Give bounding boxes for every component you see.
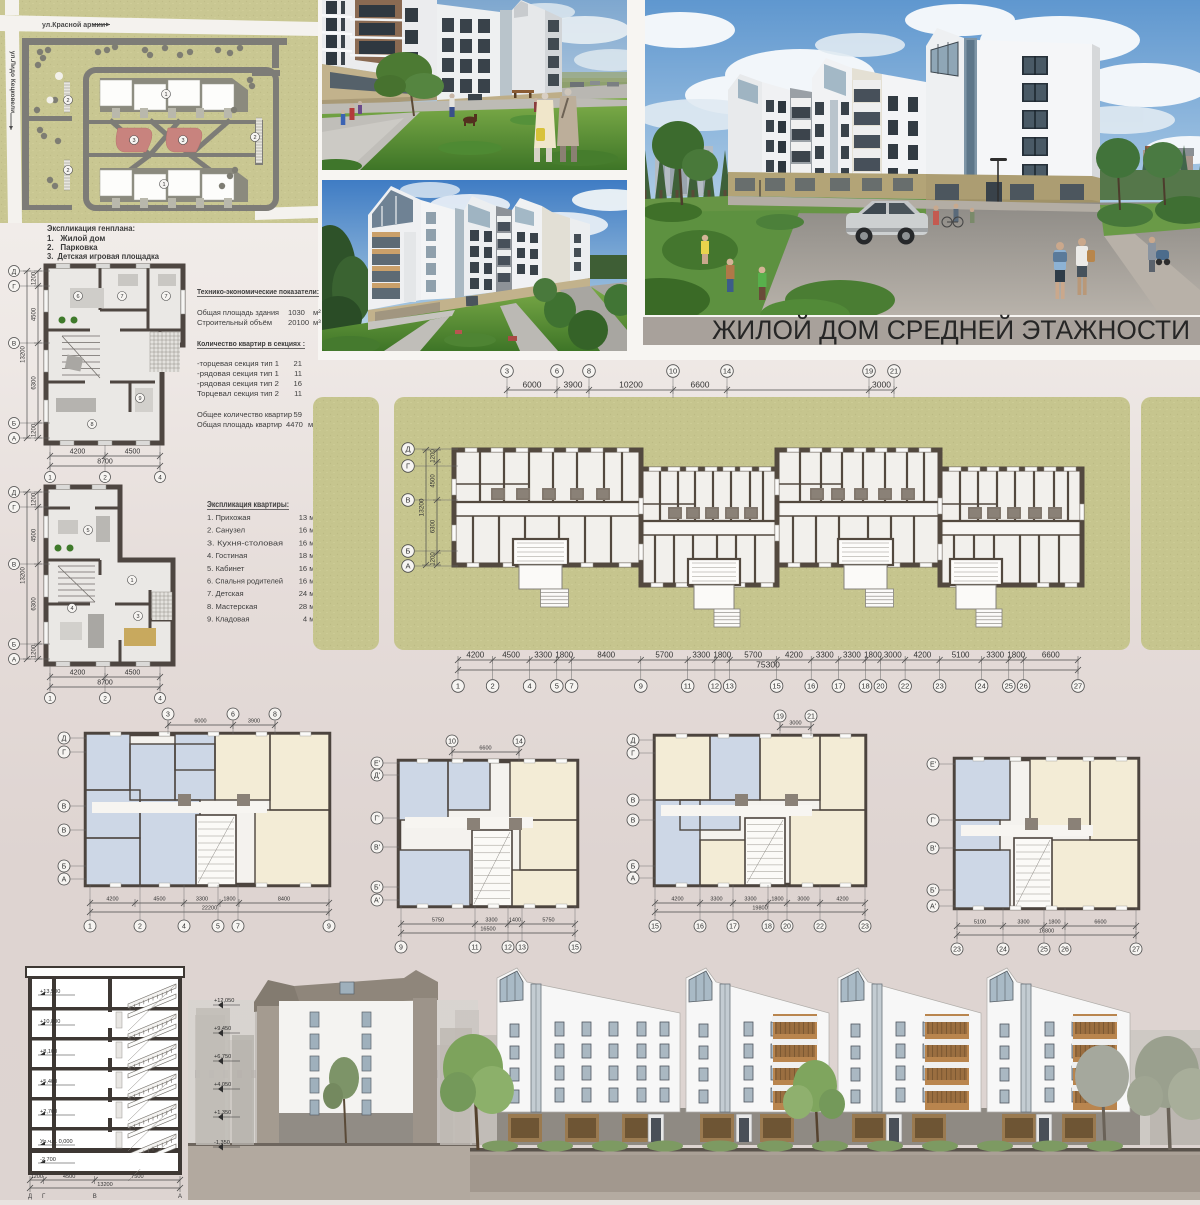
svg-text:Б: Б: [406, 547, 411, 556]
svg-text:Г: Г: [12, 504, 16, 511]
svg-text:4500: 4500: [153, 897, 165, 903]
svg-text:21: 21: [807, 714, 815, 721]
svg-text:Д: Д: [12, 489, 17, 496]
svg-text:11: 11: [471, 945, 478, 952]
svg-text:10: 10: [448, 739, 456, 746]
svg-text:5. Кабинет: 5. Кабинет: [207, 564, 245, 573]
svg-text:В: В: [631, 798, 636, 805]
svg-text:3. Кухня-столовая: 3. Кухня-столовая: [207, 538, 283, 547]
svg-text:ул.Красной армии: ул.Красной армии: [42, 21, 105, 29]
svg-text:3. Детская игровая площадка: 3. Детская игровая площадка: [47, 252, 160, 261]
svg-text:24: 24: [999, 947, 1007, 954]
svg-text:12: 12: [504, 945, 512, 952]
svg-text:24: 24: [977, 682, 985, 691]
svg-text:3300: 3300: [692, 651, 710, 660]
svg-text:Г: Г: [12, 283, 16, 290]
svg-text:м³: м³: [313, 318, 321, 327]
svg-text:А: А: [631, 876, 636, 883]
svg-text:19: 19: [776, 714, 784, 721]
svg-text:4500: 4500: [125, 670, 141, 677]
svg-text:В: В: [631, 818, 636, 825]
svg-text:1200: 1200: [431, 552, 437, 566]
svg-text:20: 20: [783, 924, 791, 931]
svg-text:3300: 3300: [816, 651, 834, 660]
svg-text:4. Гостиная: 4. Гостиная: [207, 551, 247, 560]
svg-text:Б: Б: [12, 420, 16, 427]
svg-text:11: 11: [294, 389, 302, 398]
svg-text:11: 11: [294, 369, 302, 378]
svg-text:4: 4: [158, 474, 162, 481]
svg-text:13: 13: [726, 682, 734, 691]
svg-text:15: 15: [651, 924, 659, 931]
svg-text:13: 13: [518, 945, 526, 952]
svg-text:Г': Г': [374, 816, 379, 823]
svg-text:1200: 1200: [32, 271, 38, 285]
svg-text:В: В: [12, 340, 16, 347]
svg-text:1: 1: [48, 695, 52, 702]
svg-text:17: 17: [834, 682, 842, 691]
svg-text:1. Жилой дом: 1. Жилой дом: [47, 234, 105, 243]
svg-text:22: 22: [901, 682, 909, 691]
svg-text:1200: 1200: [32, 423, 38, 437]
svg-text:Б': Б': [374, 885, 380, 892]
svg-text:7: 7: [164, 294, 167, 300]
svg-text:1: 1: [48, 474, 52, 481]
svg-text:7500: 7500: [131, 1174, 143, 1180]
svg-text:1200: 1200: [32, 644, 38, 658]
svg-text:3: 3: [166, 712, 170, 719]
svg-text:6600: 6600: [479, 746, 491, 752]
svg-text:14: 14: [723, 367, 731, 376]
svg-text:22: 22: [816, 924, 824, 931]
svg-text:1800: 1800: [223, 897, 235, 903]
svg-text:4500: 4500: [32, 307, 38, 321]
svg-text:9: 9: [639, 682, 643, 691]
svg-text:2: 2: [253, 135, 256, 141]
svg-text:1800: 1800: [864, 651, 882, 660]
svg-text:6300: 6300: [431, 519, 437, 533]
svg-text:Б: Б: [12, 641, 16, 648]
svg-text:25: 25: [1005, 682, 1013, 691]
svg-text:2. Санузел: 2. Санузел: [207, 526, 245, 535]
svg-text:Общая площадь квартир: Общая площадь квартир: [197, 420, 282, 429]
svg-text:25: 25: [1040, 947, 1048, 954]
svg-text:4200: 4200: [785, 651, 803, 660]
svg-text:13200: 13200: [21, 345, 27, 362]
svg-text:7: 7: [120, 294, 123, 300]
svg-text:6600: 6600: [1094, 920, 1106, 926]
svg-text:7. Детская: 7. Детская: [207, 589, 244, 598]
svg-text:16: 16: [807, 682, 815, 691]
svg-text:2: 2: [66, 168, 69, 174]
svg-text:6000: 6000: [194, 719, 206, 725]
svg-text:А: А: [12, 435, 17, 442]
svg-text:6600: 6600: [691, 380, 710, 390]
svg-text:4500: 4500: [431, 474, 437, 488]
svg-text:А': А': [374, 898, 380, 905]
svg-text:16: 16: [696, 924, 704, 931]
svg-text:1: 1: [456, 682, 460, 691]
svg-text:4200: 4200: [671, 897, 683, 903]
svg-text:Д: Д: [631, 738, 636, 745]
svg-text:6: 6: [555, 367, 559, 376]
svg-text:3900: 3900: [564, 380, 583, 390]
svg-text:5100: 5100: [974, 920, 986, 926]
svg-text:5750: 5750: [542, 918, 554, 924]
svg-text:21: 21: [890, 367, 898, 376]
svg-text:19: 19: [865, 367, 873, 376]
svg-text:26: 26: [1019, 682, 1027, 691]
svg-text:В': В': [930, 846, 936, 853]
svg-text:2: 2: [66, 98, 69, 104]
svg-text:3: 3: [136, 614, 139, 620]
svg-text:Торцевал секция тип 2: Торцевал секция тип 2: [197, 389, 279, 398]
svg-text:Г: Г: [62, 750, 66, 757]
svg-text:19800: 19800: [752, 906, 767, 912]
svg-text:Б: Б: [62, 864, 67, 871]
svg-text:Д: Д: [405, 445, 410, 454]
svg-text:Д: Д: [12, 268, 17, 275]
svg-text:Экспликация квартиры:: Экспликация квартиры:: [207, 500, 289, 509]
svg-text:1400: 1400: [509, 918, 521, 924]
svg-text:6000: 6000: [523, 380, 542, 390]
svg-text:+12,050: +12,050: [214, 998, 234, 1004]
svg-text:3300: 3300: [986, 651, 1004, 660]
svg-text:6600: 6600: [1042, 651, 1060, 660]
svg-text:14: 14: [515, 739, 523, 746]
svg-text:13200: 13200: [21, 566, 27, 583]
svg-text:5700: 5700: [744, 651, 762, 660]
svg-text:В: В: [405, 496, 410, 505]
svg-text:4470: 4470: [286, 420, 303, 429]
svg-text:4500: 4500: [502, 651, 520, 660]
svg-text:20: 20: [876, 682, 884, 691]
svg-text:1800: 1800: [1048, 920, 1060, 926]
svg-text:9: 9: [399, 945, 403, 952]
svg-text:Е': Е': [374, 761, 380, 768]
svg-text:4: 4: [528, 682, 532, 691]
svg-text:3300: 3300: [196, 897, 208, 903]
svg-text:4500: 4500: [63, 1174, 75, 1180]
svg-text:4: 4: [182, 924, 186, 931]
svg-text:Д: Д: [62, 736, 67, 743]
svg-text:3300: 3300: [843, 651, 861, 660]
svg-text:6300: 6300: [32, 376, 38, 390]
svg-text:8. Мастерская: 8. Мастерская: [207, 602, 257, 611]
svg-text:1800: 1800: [1007, 651, 1025, 660]
svg-text:13200: 13200: [97, 1182, 113, 1188]
svg-text:15: 15: [772, 682, 780, 691]
svg-text:5: 5: [216, 924, 220, 931]
svg-text:8400: 8400: [278, 897, 290, 903]
svg-text:12: 12: [711, 682, 719, 691]
svg-text:1800: 1800: [713, 651, 731, 660]
svg-text:5100: 5100: [952, 651, 970, 660]
svg-text:2: 2: [103, 474, 107, 481]
svg-text:13200: 13200: [419, 498, 426, 516]
svg-text:Д': Д': [374, 773, 380, 780]
svg-text:Б: Б: [631, 864, 636, 871]
svg-text:Б': Б': [930, 888, 936, 895]
svg-text:11: 11: [684, 682, 692, 691]
svg-text:Общая площадь здания: Общая площадь здания: [197, 308, 279, 317]
svg-text:-торцевая секция тип 1: -торцевая секция тип 1: [197, 359, 279, 368]
svg-text:4200: 4200: [913, 651, 931, 660]
svg-text:В: В: [62, 828, 67, 835]
svg-text:В': В': [374, 845, 380, 852]
svg-text:А: А: [405, 562, 410, 571]
svg-text:3: 3: [181, 138, 184, 144]
svg-text:3300: 3300: [710, 897, 722, 903]
svg-text:Г: Г: [406, 462, 410, 471]
svg-text:8: 8: [587, 367, 591, 376]
svg-text:3300: 3300: [1017, 920, 1029, 926]
svg-text:Строительный объём: Строительный объём: [197, 318, 272, 327]
svg-text:4200: 4200: [70, 449, 86, 456]
svg-text:3000: 3000: [872, 380, 891, 390]
svg-text:16500: 16500: [480, 927, 495, 933]
svg-text:3: 3: [132, 138, 135, 144]
svg-text:5750: 5750: [432, 918, 444, 924]
svg-text:3000: 3000: [797, 897, 809, 903]
svg-text:4200: 4200: [106, 897, 118, 903]
svg-text:3300: 3300: [485, 918, 497, 924]
svg-text:-рядовая секция тип 1: -рядовая секция тип 1: [197, 369, 279, 378]
svg-text:1800: 1800: [771, 897, 783, 903]
svg-text:6: 6: [76, 294, 79, 300]
svg-text:А: А: [178, 1194, 182, 1200]
svg-text:9: 9: [327, 924, 331, 931]
svg-text:2. Парковка: 2. Парковка: [47, 243, 98, 252]
svg-text:27: 27: [1132, 947, 1140, 954]
svg-text:18: 18: [861, 682, 869, 691]
svg-text:6300: 6300: [32, 597, 38, 611]
svg-text:Д: Д: [28, 1194, 32, 1200]
svg-text:Г': Г': [930, 818, 935, 825]
svg-text:3900: 3900: [248, 719, 260, 725]
svg-text:5: 5: [86, 528, 89, 534]
svg-text:4200: 4200: [466, 651, 484, 660]
svg-text:Г: Г: [631, 751, 635, 758]
svg-text:3300: 3300: [744, 897, 756, 903]
svg-text:7: 7: [236, 924, 240, 931]
svg-text:16: 16: [294, 379, 302, 388]
svg-text:3000: 3000: [884, 651, 902, 660]
svg-text:2: 2: [491, 682, 495, 691]
svg-text:6: 6: [231, 712, 235, 719]
svg-text:4500: 4500: [32, 528, 38, 542]
svg-text:7: 7: [570, 682, 574, 691]
svg-text:5: 5: [555, 682, 559, 691]
svg-text:В: В: [12, 561, 16, 568]
svg-text:3300: 3300: [534, 651, 552, 660]
svg-text:А: А: [12, 656, 17, 663]
svg-text:В: В: [93, 1194, 97, 1200]
svg-text:4500: 4500: [125, 449, 141, 456]
svg-text:Технико-экономические показате: Технико-экономические показатели:: [197, 287, 319, 296]
svg-text:2: 2: [103, 695, 107, 702]
svg-text:Е': Е': [930, 762, 936, 769]
svg-text:3: 3: [505, 367, 509, 376]
svg-text:Количество квартир в секциях :: Количество квартир в секциях :: [197, 339, 305, 348]
svg-text:1200: 1200: [431, 449, 437, 463]
svg-text:59: 59: [294, 410, 302, 419]
svg-text:10: 10: [669, 367, 677, 376]
svg-text:23: 23: [861, 924, 869, 931]
svg-text:3000: 3000: [789, 721, 801, 727]
svg-text:А: А: [62, 877, 67, 884]
svg-text:ул.Лидо Кецковели: ул.Лидо Кецковели: [9, 51, 16, 113]
svg-text:26: 26: [1061, 947, 1069, 954]
svg-text:1. Прихожая: 1. Прихожая: [207, 513, 251, 522]
svg-text:-рядовая секция тип 2: -рядовая секция тип 2: [197, 379, 279, 388]
svg-text:1: 1: [164, 92, 167, 98]
svg-text:1: 1: [88, 924, 92, 931]
svg-text:1: 1: [162, 182, 165, 188]
svg-text:17: 17: [729, 924, 737, 931]
svg-text:10200: 10200: [619, 380, 643, 390]
svg-text:1200: 1200: [32, 492, 38, 506]
svg-text:15: 15: [571, 945, 579, 952]
svg-text:16800: 16800: [1039, 929, 1054, 935]
svg-text:8: 8: [273, 712, 277, 719]
svg-text:4200: 4200: [70, 670, 86, 677]
svg-text:21: 21: [294, 359, 302, 368]
svg-text:23: 23: [935, 682, 943, 691]
svg-text:9. Кладовая: 9. Кладовая: [207, 615, 249, 624]
svg-text:22200: 22200: [202, 906, 217, 912]
svg-text:8: 8: [90, 422, 93, 428]
svg-text:1200: 1200: [31, 1174, 43, 1180]
svg-text:1030: 1030: [288, 308, 305, 317]
svg-text:23: 23: [953, 947, 961, 954]
svg-text:4: 4: [158, 695, 162, 702]
svg-text:9: 9: [138, 396, 141, 402]
svg-text:1: 1: [130, 578, 133, 584]
svg-text:1800: 1800: [555, 651, 573, 660]
svg-text:5700: 5700: [655, 651, 673, 660]
svg-text:Общее количество квартир: Общее количество квартир: [197, 410, 292, 419]
svg-text:4: 4: [70, 606, 73, 612]
svg-text:2: 2: [138, 924, 142, 931]
svg-text:В: В: [62, 804, 67, 811]
svg-text:20100: 20100: [288, 318, 309, 327]
svg-text:м²: м²: [313, 308, 321, 317]
svg-text:8400: 8400: [597, 651, 615, 660]
svg-text:ЖИЛОЙ ДОМ СРЕДНЕЙ ЭТАЖНОСТИ: ЖИЛОЙ ДОМ СРЕДНЕЙ ЭТАЖНОСТИ: [712, 315, 1190, 345]
svg-text:Экспликация генплана:: Экспликация генплана:: [47, 224, 135, 233]
svg-text:27: 27: [1074, 682, 1082, 691]
svg-text:18: 18: [764, 924, 772, 931]
svg-text:А': А': [930, 904, 936, 911]
svg-text:4200: 4200: [836, 897, 848, 903]
svg-text:6. Спальня родителей: 6. Спальня родителей: [207, 577, 283, 586]
